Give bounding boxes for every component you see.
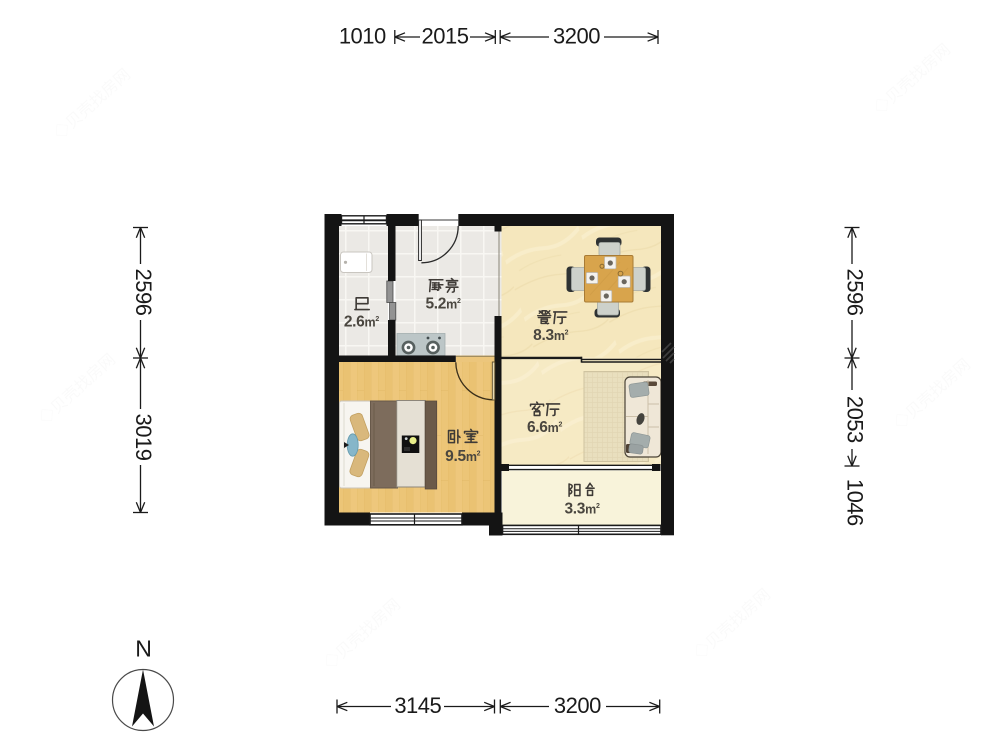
- svg-text:2015: 2015: [422, 23, 469, 48]
- svg-text:2596: 2596: [843, 269, 868, 316]
- svg-text:5.2m2: 5.2m2: [425, 295, 460, 312]
- svg-text:1010: 1010: [339, 23, 386, 48]
- svg-text:2596: 2596: [131, 269, 156, 316]
- svg-text:6.6m2: 6.6m2: [527, 419, 562, 436]
- svg-text:2053: 2053: [843, 396, 868, 443]
- svg-text:3145: 3145: [394, 693, 441, 718]
- svg-text:3.3m2: 3.3m2: [564, 500, 599, 517]
- svg-text:3200: 3200: [554, 693, 601, 718]
- svg-text:3200: 3200: [553, 23, 600, 48]
- svg-text:2.6m2: 2.6m2: [344, 314, 379, 331]
- svg-text:8.3m2: 8.3m2: [533, 327, 568, 344]
- svg-text:9.5m2: 9.5m2: [445, 448, 480, 465]
- svg-text:1046: 1046: [843, 479, 868, 526]
- svg-text:3019: 3019: [131, 414, 156, 461]
- svg-text:N: N: [135, 636, 152, 662]
